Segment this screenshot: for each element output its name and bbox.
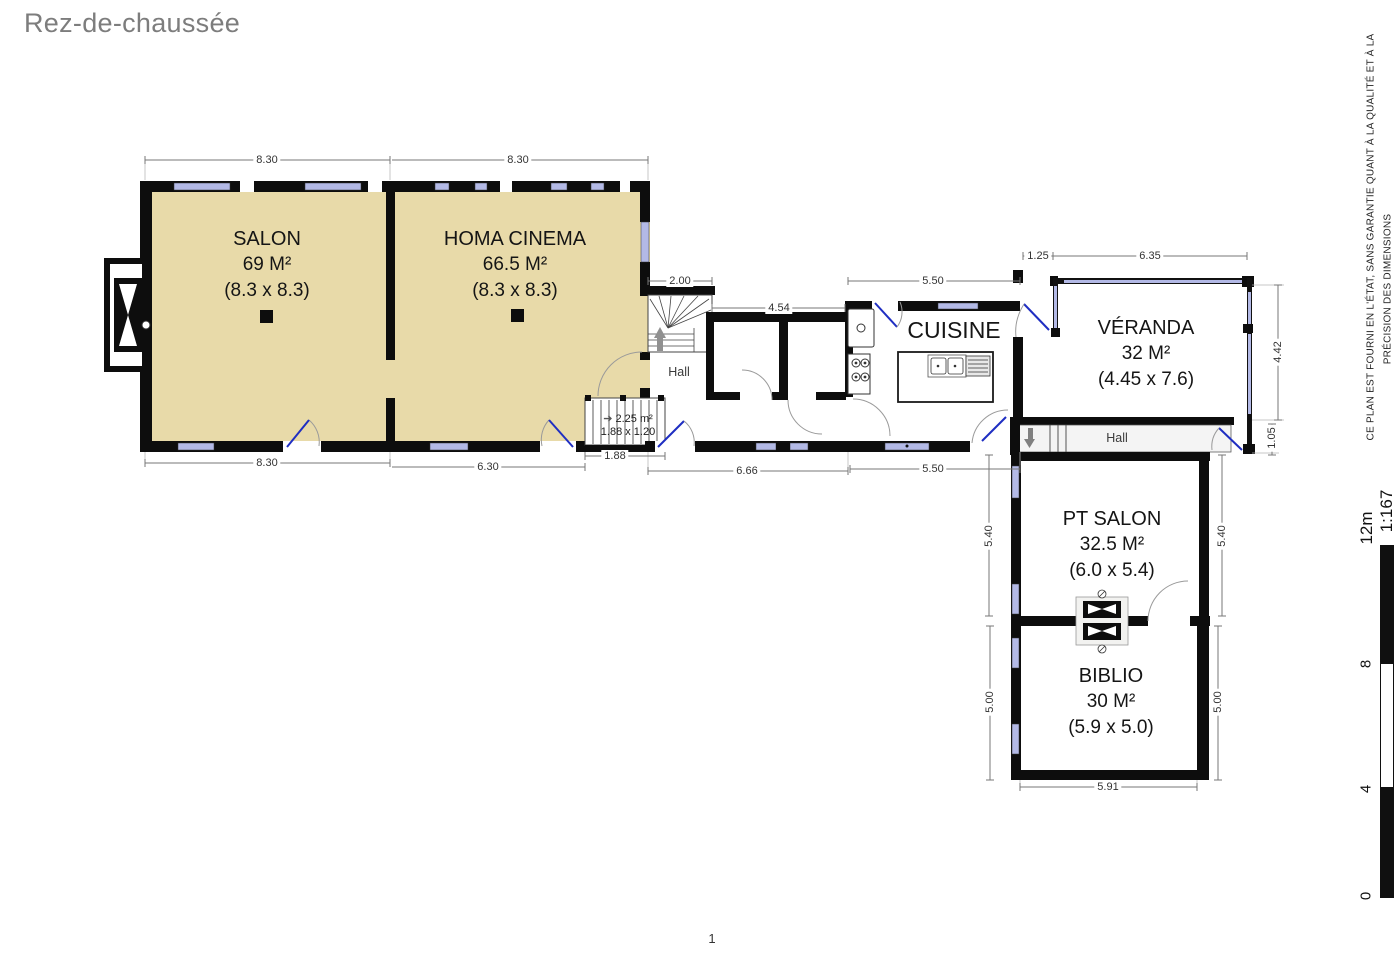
door-leaf (1024, 304, 1049, 330)
dim-cinema-top: 8.30 (504, 154, 531, 166)
glazing (1054, 286, 1057, 328)
wall-ptsalon-right (1199, 452, 1209, 626)
room-size: (4.45 x 7.6) (1098, 367, 1195, 393)
wall-biblio-right (1197, 626, 1209, 780)
room-area: 69 M² (224, 252, 310, 278)
window (938, 303, 978, 309)
cinema-marker-square (511, 309, 524, 322)
scale-tick-0: 0 (1358, 892, 1375, 900)
dim-pt-salon-right: 5.40 (1216, 522, 1228, 549)
room-area: 66.5 M² (444, 252, 586, 278)
scale-tick-4: 4 (1358, 785, 1375, 793)
stairs-annotation: ➔ 2.25 m² 1.88 x 1.20 (601, 413, 655, 439)
dim-corridor-bottom: 6.66 (733, 465, 760, 477)
disclaimer-line-2: PRÉCISION DES DIMENSIONS (1383, 214, 1394, 364)
dim-veranda-right-small: 1.05 (1266, 424, 1278, 451)
window (1012, 724, 1019, 754)
wall-corridor-bottom (776, 441, 790, 452)
kitchen-island (898, 352, 993, 402)
page-number: 1 (708, 931, 715, 946)
wall-right (640, 181, 650, 222)
door-swing-arc (853, 399, 890, 436)
stairs-down-arrow-icon (1028, 428, 1033, 439)
room-label-salon: SALON 69 M² (8.3 x 8.3) (224, 226, 310, 304)
window (1012, 638, 1019, 668)
dim-salon-top: 8.30 (253, 154, 280, 166)
room-size: (6.0 x 5.4) (1063, 558, 1162, 584)
scale-bar-segment (1380, 545, 1394, 663)
page-title: Rez-de-chaussée (24, 8, 240, 39)
room-size: (8.3 x 8.3) (224, 278, 310, 304)
room-label-veranda: VÉRANDA 32 M² (4.45 x 7.6) (1098, 315, 1195, 393)
door-opening (540, 441, 576, 452)
wall-divider (386, 192, 395, 360)
floor-plan-drawing (0, 0, 1400, 953)
room-size: (5.9 x 5.0) (1068, 715, 1154, 741)
glazing (1064, 280, 1242, 283)
room-name: HOMA CINEMA (444, 226, 586, 252)
hall-label-center: Hall (668, 365, 690, 379)
dim-pt-salon-left: 5.40 (983, 522, 995, 549)
disclaimer-line-1: CE PLAN EST FOURNI EN L'ÉTAT, SANS GARAN… (1366, 34, 1377, 441)
kitchen-stove (848, 354, 870, 394)
dim-veranda-offset: 1.25 (1024, 250, 1051, 262)
corridor (645, 421, 848, 452)
wall-right (640, 352, 650, 360)
cuisine-room (845, 270, 1023, 452)
double-fireplace (1076, 590, 1128, 653)
room-label-biblio: BIBLIO 30 M² (5.9 x 5.0) (1068, 663, 1154, 741)
stairs-area: 2.25 m² (615, 413, 652, 425)
wall-ptsalon-top (1011, 452, 1210, 461)
salon-marker-square (260, 310, 273, 323)
scale-max-label: 12m (1357, 511, 1377, 544)
room-label-pt-salon: PT SALON 32.5 M² (6.0 x 5.4) (1063, 506, 1162, 584)
main-block (104, 181, 650, 452)
stairs-direction-arrow-icon: ➔ (603, 413, 612, 425)
wall-biblio-bottom (1011, 770, 1209, 780)
window (1012, 466, 1019, 498)
door-opening (970, 441, 1014, 452)
room-name: BIBLIO (1068, 663, 1154, 689)
door-swing-arc (1148, 581, 1188, 621)
dim-veranda-top: 6.35 (1136, 250, 1163, 262)
salon-fireplace (104, 258, 150, 372)
glazing (1248, 292, 1251, 326)
scale-bar-segment (1380, 788, 1394, 898)
room-area: 32.5 M² (1063, 532, 1162, 558)
room-name: SALON (224, 226, 310, 252)
door-swing-arc (972, 410, 1008, 443)
window (1012, 584, 1019, 614)
window-mullion (906, 445, 909, 448)
room-name: VÉRANDA (1098, 315, 1195, 341)
door-opening (872, 301, 898, 311)
stairs-up-arrow-icon (657, 338, 663, 351)
dim-biblio-bottom: 5.91 (1094, 781, 1121, 793)
dim-biblio-right: 5.00 (1212, 688, 1224, 715)
scale-bar-segment (1380, 663, 1394, 788)
room-name: PT SALON (1063, 506, 1162, 532)
dim-storage-top: 4.54 (765, 302, 792, 314)
door-leaf (982, 417, 1006, 441)
dim-cuisine-bottom: 5.50 (919, 463, 946, 475)
scale-ratio: 1:167 (1377, 490, 1397, 533)
winder-staircase (645, 286, 715, 352)
room-area: 30 M² (1068, 689, 1154, 715)
room-area: 32 M² (1098, 341, 1195, 367)
wall-hall-top (1010, 417, 1234, 425)
kitchen-sink-unit (848, 309, 874, 347)
dim-salon-bottom: 8.30 (253, 457, 280, 469)
room-size: (8.3 x 8.3) (444, 278, 586, 304)
storage-rooms (706, 312, 846, 434)
dim-veranda-right: 4.42 (1272, 338, 1284, 365)
door-opening (1148, 616, 1190, 626)
dim-stair-bottom: 1.88 (601, 450, 628, 462)
hall-label-right: Hall (1106, 431, 1128, 445)
dim-cinema-bottom: 6.30 (474, 461, 501, 473)
scale-tick-8: 8 (1358, 660, 1375, 668)
room-label-cinema: HOMA CINEMA 66.5 M² (8.3 x 8.3) (444, 226, 586, 304)
dim-cuisine-top: 5.50 (919, 275, 946, 287)
stairs-size: 1.88 x 1.20 (601, 426, 655, 439)
room-label-cuisine: CUISINE (907, 317, 1000, 343)
room-name: CUISINE (907, 317, 1000, 343)
dim-biblio-left: 5.00 (984, 688, 996, 715)
wall-divider (386, 398, 395, 441)
door-opening (283, 441, 321, 452)
dim-stair-top: 2.00 (666, 275, 693, 287)
glazing (1248, 334, 1251, 414)
floor-plan-page: Rez-de-chaussée SALON 69 M² (8.3 x 8.3) … (0, 0, 1400, 953)
